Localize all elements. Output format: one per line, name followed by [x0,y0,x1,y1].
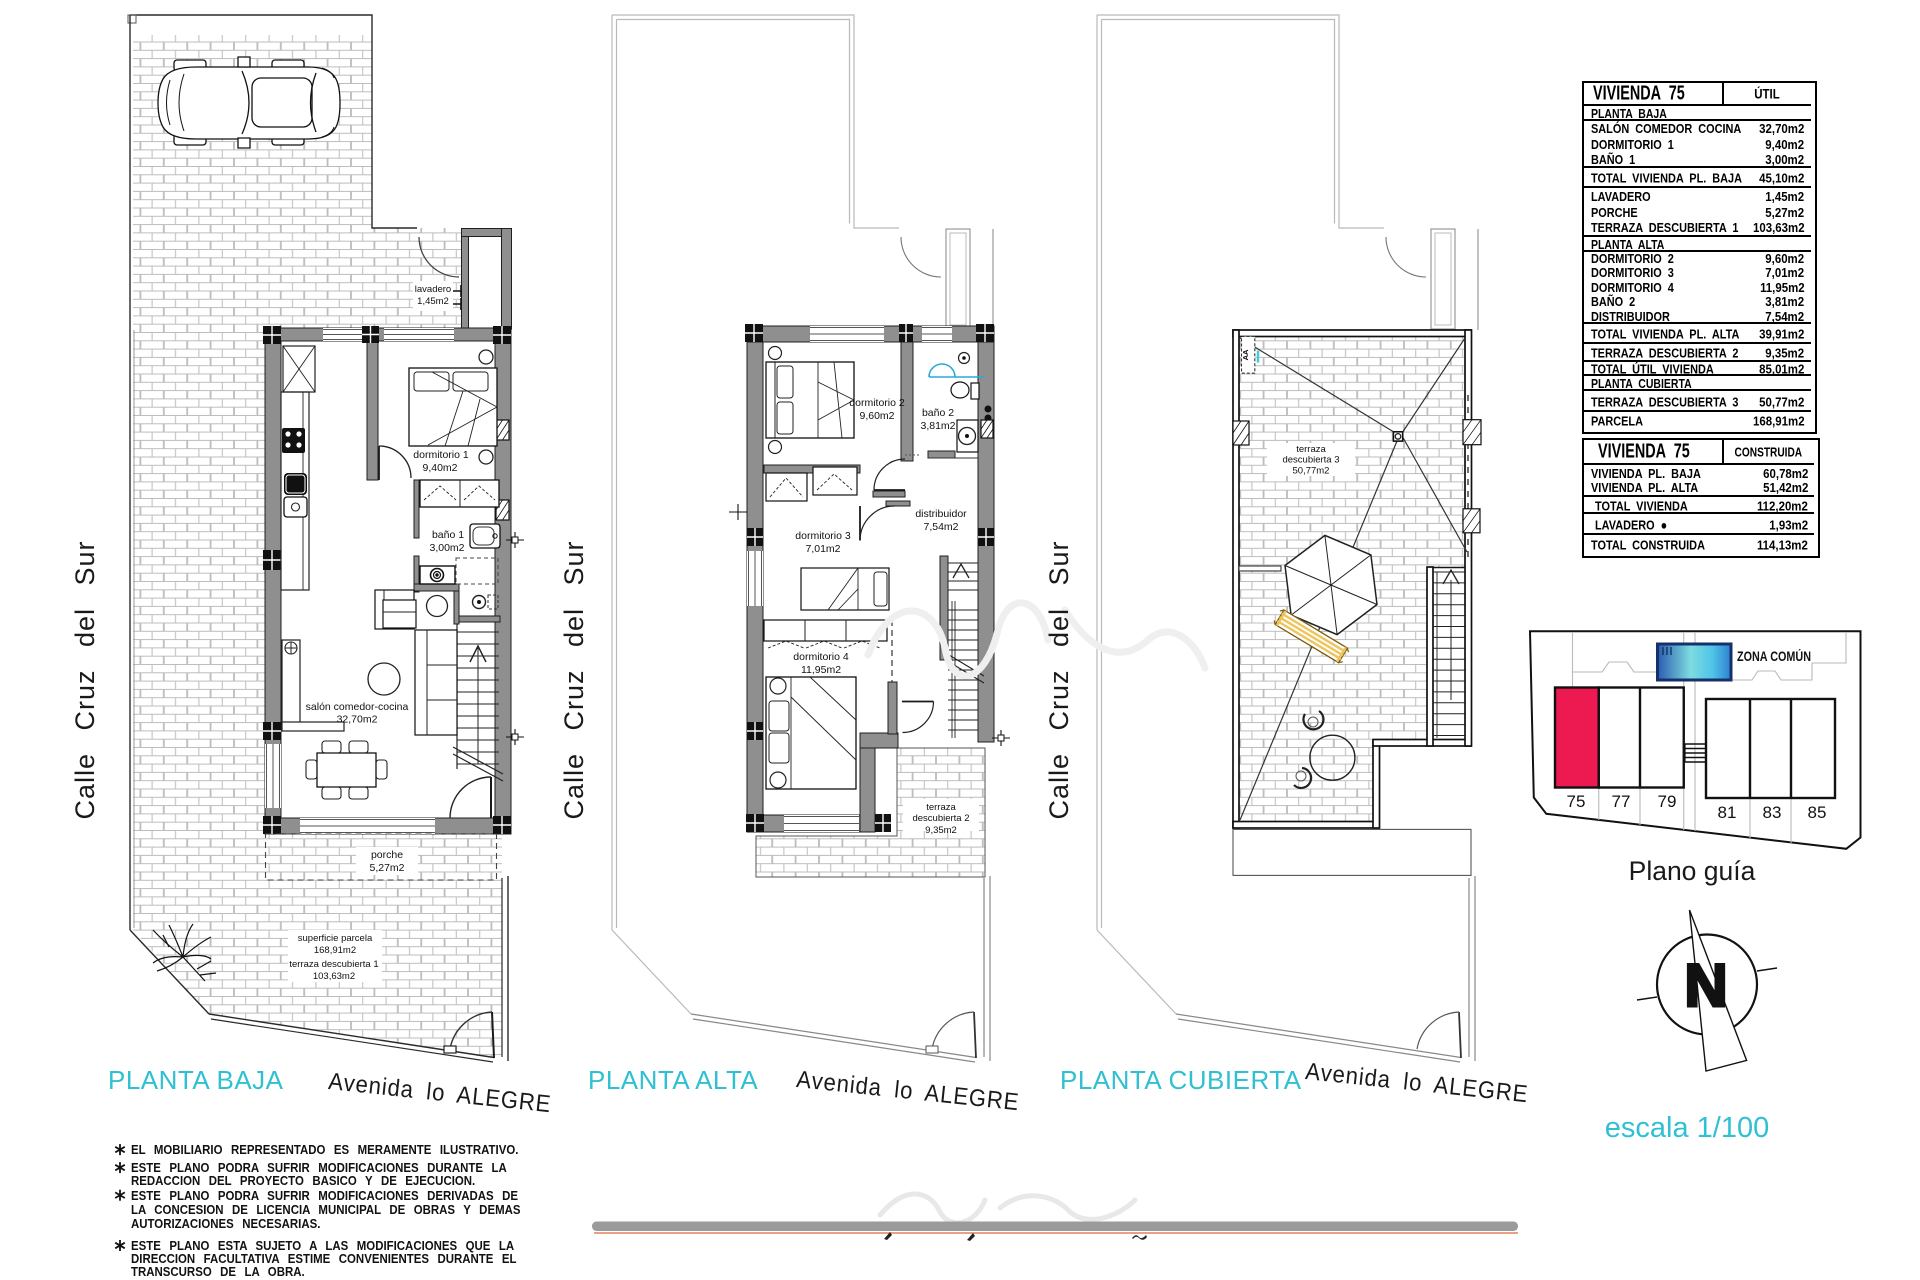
svg-text:terraza descubierta 1: terraza descubierta 1 [289,959,378,970]
svg-text:salón comedor-cocina: salón comedor-cocina [306,701,409,713]
svg-text:168,91m2: 168,91m2 [314,945,356,956]
svg-text:terraza: terraza [926,802,956,813]
svg-text:5,27m2: 5,27m2 [369,862,404,874]
svg-text:N: N [1684,952,1727,1019]
svg-text:11,95m2: 11,95m2 [801,664,841,676]
svg-text:dormitorio 1: dormitorio 1 [413,449,469,461]
svg-text:75: 75 [1567,792,1586,811]
svg-text:baño 1: baño 1 [432,529,464,541]
svg-text:dormitorio 4: dormitorio 4 [793,651,849,663]
svg-text:baño 2: baño 2 [922,407,954,419]
svg-text:3,81m2: 3,81m2 [920,420,955,432]
svg-text:descubierta 2: descubierta 2 [912,813,969,824]
svg-text:9,35m2: 9,35m2 [925,825,957,836]
svg-text:AA: AA [1241,349,1250,360]
svg-text:7,01m2: 7,01m2 [805,543,840,555]
svg-text:81: 81 [1718,803,1737,822]
svg-text:porche: porche [371,849,403,861]
svg-text:79: 79 [1658,792,1677,811]
svg-text:superficie parcela: superficie parcela [298,933,373,944]
svg-text:9,40m2: 9,40m2 [422,462,457,474]
svg-text:distribuidor: distribuidor [915,508,967,520]
svg-text:1,45m2: 1,45m2 [417,296,449,307]
svg-text:terraza: terraza [1296,444,1326,455]
svg-text:lavadero: lavadero [415,284,451,295]
svg-text:50,77m2: 50,77m2 [1293,466,1330,477]
svg-text:dormitorio 3: dormitorio 3 [795,530,851,542]
svg-text:85: 85 [1808,803,1827,822]
svg-text:9,60m2: 9,60m2 [859,410,894,422]
svg-text:32,70m2: 32,70m2 [337,714,378,726]
svg-text:3,00m2: 3,00m2 [429,542,464,554]
svg-text:77: 77 [1612,792,1631,811]
svg-text:7,54m2: 7,54m2 [923,521,958,533]
svg-text:descubierta 3: descubierta 3 [1282,455,1339,466]
svg-text:103,63m2: 103,63m2 [313,971,355,982]
svg-text:dormitorio 2: dormitorio 2 [849,397,905,409]
svg-text:83: 83 [1763,803,1782,822]
